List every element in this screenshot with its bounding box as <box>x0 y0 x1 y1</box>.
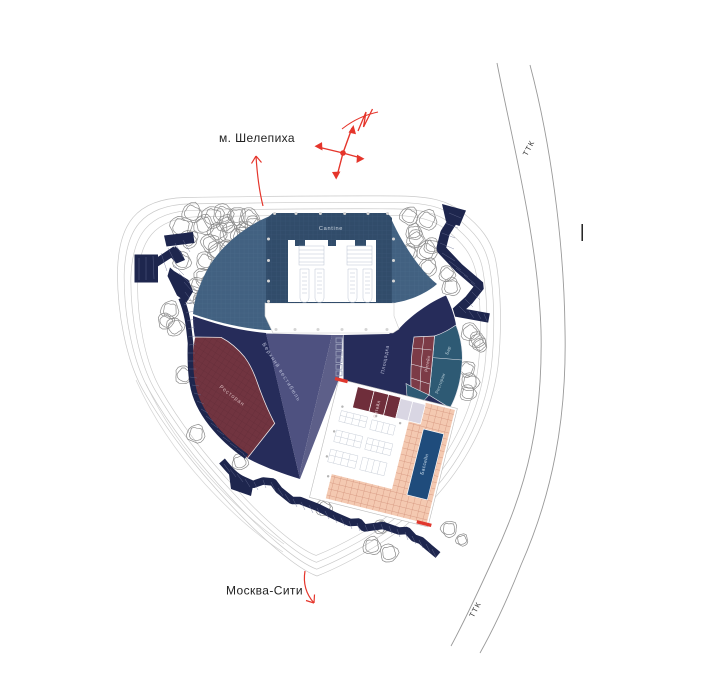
svg-text:м. Шелепиха: м. Шелепиха <box>219 131 295 145</box>
svg-text:Cantine: Cantine <box>319 226 343 232</box>
svg-text:ТТК: ТТК <box>467 600 483 619</box>
svg-text:Москва-Сити: Москва-Сити <box>226 584 303 598</box>
svg-text:ТТК: ТТК <box>521 139 537 158</box>
